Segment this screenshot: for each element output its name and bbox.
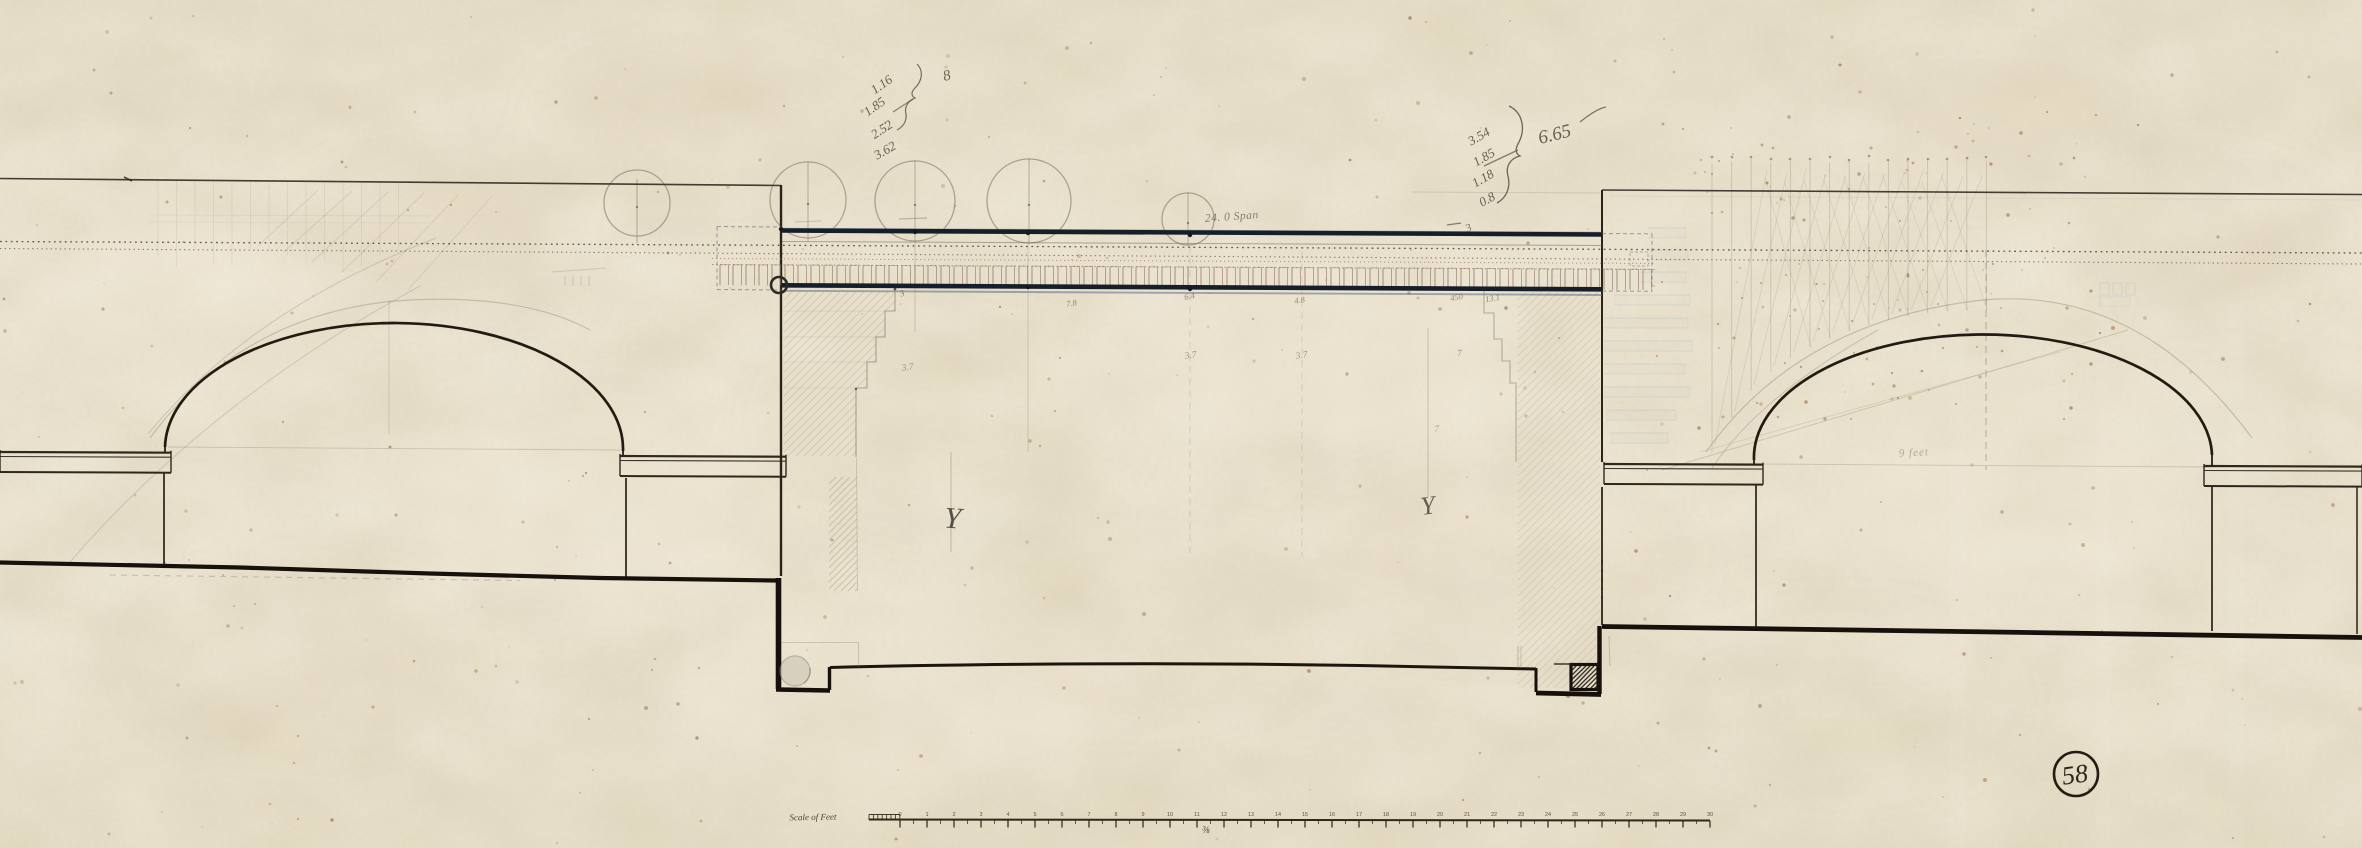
svg-text:16: 16 xyxy=(1329,812,1335,818)
svg-text:1: 1 xyxy=(925,812,928,818)
svg-text:2: 2 xyxy=(952,812,955,818)
svg-text:24: 24 xyxy=(1545,812,1551,818)
svg-text:19: 19 xyxy=(1410,812,1416,818)
svg-text:21: 21 xyxy=(1464,812,1470,818)
svg-text:9 feet: 9 feet xyxy=(1898,446,1929,460)
svg-text:Scale of Feet: Scale of Feet xyxy=(789,812,837,823)
svg-text:30: 30 xyxy=(1707,812,1713,818)
svg-text:58: 58 xyxy=(2060,758,2090,790)
svg-text:12: 12 xyxy=(1221,812,1227,818)
svg-text:18: 18 xyxy=(1383,812,1389,818)
svg-text:17: 17 xyxy=(1356,812,1362,818)
svg-text:10: 10 xyxy=(1167,812,1173,818)
svg-text:5: 5 xyxy=(1033,812,1036,818)
svg-text:4: 4 xyxy=(1006,812,1009,818)
svg-text:25: 25 xyxy=(1572,812,1578,818)
svg-text:20: 20 xyxy=(1437,812,1443,818)
svg-text:11: 11 xyxy=(1194,812,1200,818)
svg-text:7: 7 xyxy=(1087,812,1090,818)
svg-text:9: 9 xyxy=(1141,812,1144,818)
svg-text:22: 22 xyxy=(1491,812,1497,818)
svg-text:0: 0 xyxy=(898,812,901,818)
svg-text:27: 27 xyxy=(1626,812,1632,818)
svg-text:29: 29 xyxy=(1680,812,1686,818)
svg-text:3: 3 xyxy=(979,812,982,818)
svg-text:14: 14 xyxy=(1275,812,1281,818)
svg-text:28: 28 xyxy=(1653,812,1659,818)
svg-text:13: 13 xyxy=(1248,812,1254,818)
svg-text:26: 26 xyxy=(1599,812,1605,818)
svg-text:23: 23 xyxy=(1518,812,1524,818)
svg-text:⅜: ⅜ xyxy=(1202,825,1210,836)
svg-text:8: 8 xyxy=(1114,812,1117,818)
svg-text:15: 15 xyxy=(1302,812,1308,818)
svg-text:6: 6 xyxy=(1060,812,1063,818)
